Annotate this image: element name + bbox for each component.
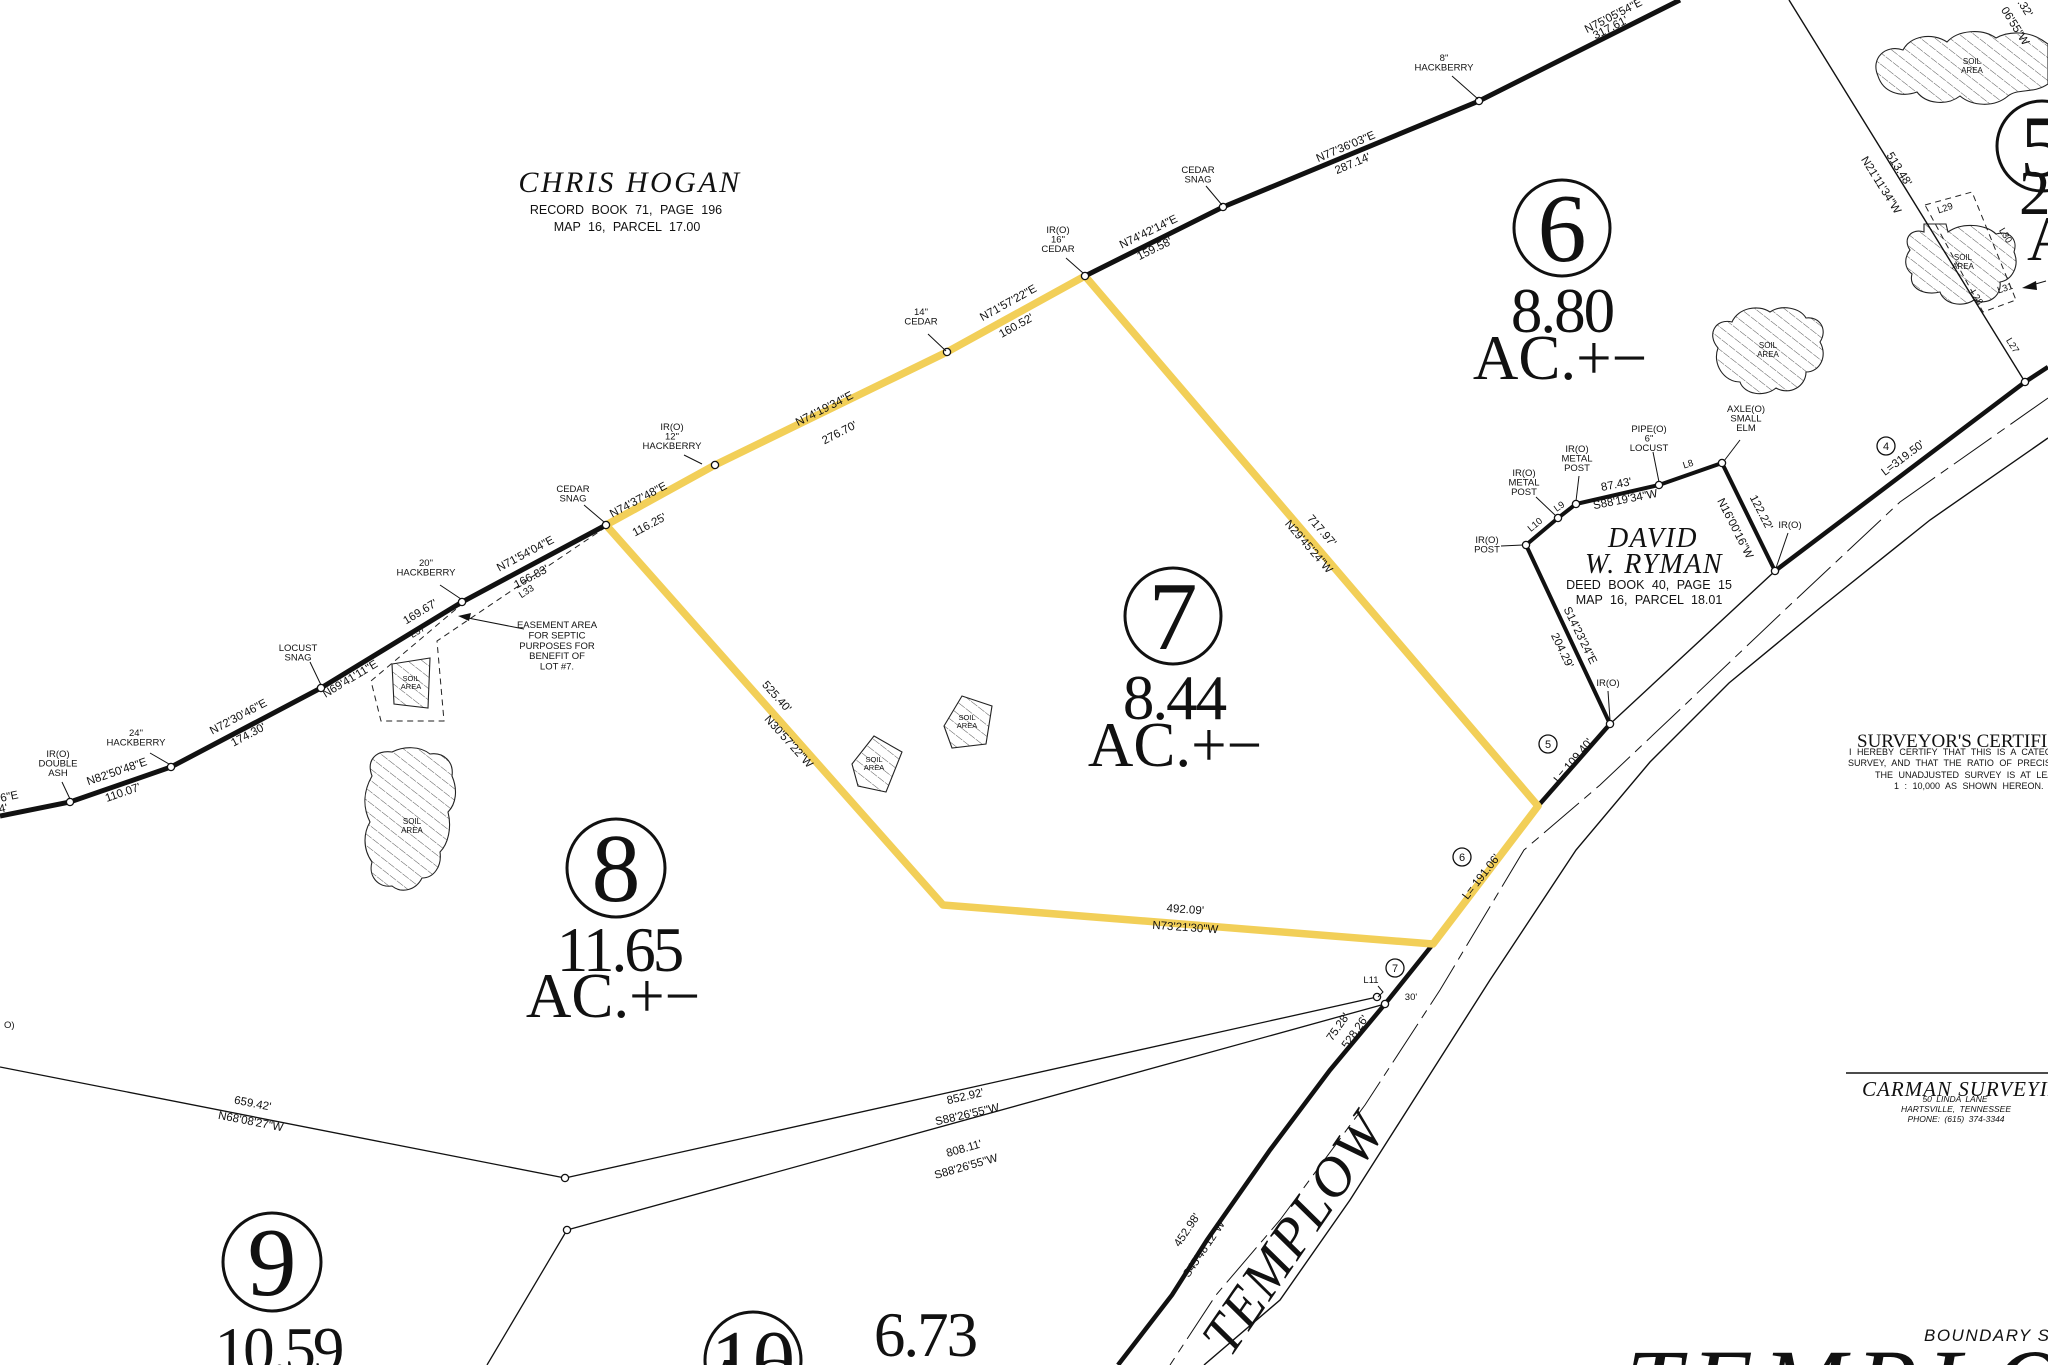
svg-text:AC.+−: AC.+− [2027,204,2048,274]
svg-text:9: 9 [248,1209,297,1317]
svg-text:DEED BOOK 40, PAGE 15: DEED BOOK 40, PAGE 15 [1566,578,1732,592]
svg-text:SURVEY, AND THAT THE RATIO OF: SURVEY, AND THAT THE RATIO OF PRECISION … [1848,758,2048,768]
svg-text:I HEREBY CERTIFY THAT THIS IS: I HEREBY CERTIFY THAT THIS IS A CATEGORY [1849,747,2048,757]
svg-text:POST: POST [1474,545,1500,556]
svg-text:7: 7 [1149,563,1198,671]
svg-text:AC.+−: AC.+− [705,1346,879,1365]
svg-text:7: 7 [1392,963,1398,975]
svg-text:BENEFIT OF: BENEFIT OF [529,651,585,662]
svg-text:LOCUST: LOCUST [1630,443,1669,454]
svg-text:IR(O): IR(O) [1778,520,1801,531]
svg-text:5: 5 [1545,739,1551,751]
svg-text:50 LINDA LANE: 50 LINDA LANE [1922,1094,1987,1104]
svg-text:POST: POST [1564,463,1590,474]
svg-text:AREA: AREA [1757,350,1779,359]
svg-text:LOT #7.: LOT #7. [540,662,574,673]
svg-text:SOIL: SOIL [1954,253,1973,262]
svg-text:AC.+−: AC.+− [1088,710,1262,780]
svg-text:CHRIS HOGAN: CHRIS HOGAN [518,166,741,199]
svg-text:CEDAR: CEDAR [1041,244,1074,255]
svg-text:8: 8 [592,815,641,923]
svg-text:EASEMENT AREA: EASEMENT AREA [517,620,598,631]
svg-text:AC.+−: AC.+− [526,961,700,1031]
svg-text:MAP 16, PARCEL 18.01: MAP 16, PARCEL 18.01 [1576,593,1723,607]
svg-text:PURPOSES FOR: PURPOSES FOR [519,641,595,652]
svg-text:TEMPLOW: TEMPLOW [1626,1329,2048,1365]
svg-text:6: 6 [1459,852,1465,864]
svg-text:SOIL: SOIL [403,817,422,826]
svg-text:RECORD BOOK 71, PAGE 196: RECORD BOOK 71, PAGE 196 [530,203,722,217]
svg-text:SOIL: SOIL [1963,57,1982,66]
svg-text:L11: L11 [1363,975,1378,986]
svg-text:SNAG: SNAG [560,494,587,505]
svg-text:FOR SEPTIC: FOR SEPTIC [528,630,585,641]
svg-text:AC.+−: AC.+− [1473,323,1647,393]
svg-text:AREA: AREA [401,682,421,691]
svg-text:SOIL: SOIL [1759,341,1778,350]
svg-text:AREA: AREA [957,721,977,730]
svg-text:CEDAR: CEDAR [904,317,937,328]
svg-text:MAP 16, PARCEL 17.00: MAP 16, PARCEL 17.00 [554,220,701,234]
svg-text:THE UNADJUSTED SURVEY IS AT LE: THE UNADJUSTED SURVEY IS AT LEAST [1875,770,2048,780]
svg-text:HACKBERRY: HACKBERRY [107,738,167,749]
svg-text:ELM: ELM [1736,423,1756,434]
svg-text:SNAG: SNAG [285,653,312,664]
svg-text:10.59: 10.59 [215,1315,342,1365]
svg-text:PHONE: (615) 374-3344: PHONE: (615) 374-3344 [1907,1114,2004,1124]
svg-text:W. RYMAN: W. RYMAN [1585,549,1723,580]
svg-text:6.73: 6.73 [874,1300,977,1365]
svg-text:HARTSVILLE, TENNESSEE: HARTSVILLE, TENNESSEE [1901,1104,2011,1114]
svg-text:ASH: ASH [48,768,68,779]
svg-text:30': 30' [1405,992,1418,1003]
svg-text:4: 4 [1883,441,1889,453]
svg-text:AREA: AREA [864,763,884,772]
svg-text:AREA: AREA [1961,66,1983,75]
svg-text:6: 6 [1538,175,1587,283]
svg-text:HACKBERRY: HACKBERRY [1415,63,1475,74]
svg-text:O): O) [4,1020,15,1031]
svg-text:1 : 10,000 AS SHOWN HEREON.: 1 : 10,000 AS SHOWN HEREON. [1894,781,2044,791]
svg-text:SNAG: SNAG [1185,175,1212,186]
svg-text:AREA: AREA [401,826,423,835]
svg-text:HACKBERRY: HACKBERRY [397,568,457,579]
svg-text:HACKBERRY: HACKBERRY [643,441,703,452]
svg-text:POST: POST [1511,487,1537,498]
svg-text:IR(O): IR(O) [1596,678,1619,689]
